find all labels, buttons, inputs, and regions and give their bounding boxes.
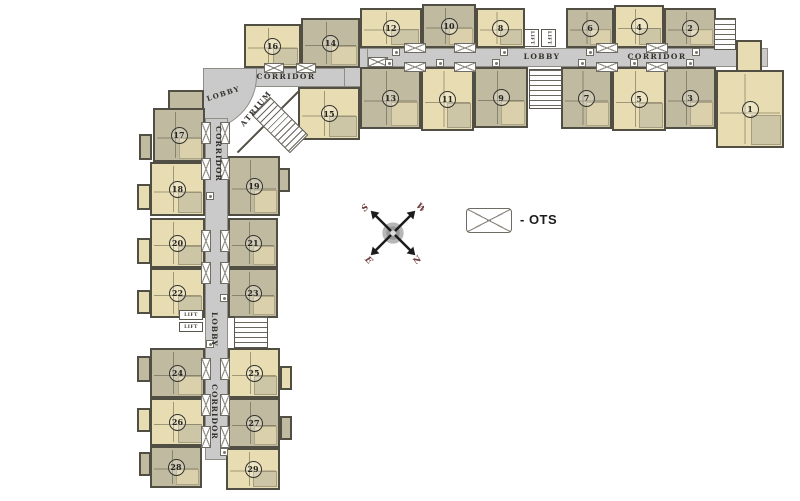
unit-20: 20 — [150, 218, 205, 268]
lift-shaft: LIFT — [179, 310, 203, 320]
label-corridor-left-upper: CORRIDOR — [214, 126, 223, 182]
unit-16: 16 — [244, 24, 301, 68]
unit-14: 14 — [301, 18, 360, 68]
entry-marker — [586, 48, 594, 56]
entry-marker — [436, 59, 444, 67]
balcony-bump — [139, 134, 152, 160]
unit-28: 28 — [150, 446, 202, 488]
building-block — [168, 90, 204, 110]
label-lobby-right: LOBBY — [518, 52, 566, 61]
unit-17: 17 — [153, 108, 205, 162]
compass-east: E — [362, 254, 374, 264]
unit-11-number: 11 — [439, 91, 456, 108]
unit-17-number: 17 — [171, 127, 188, 144]
entry-marker — [220, 448, 228, 456]
entry-marker — [392, 48, 400, 56]
unit-26-number: 26 — [169, 414, 186, 431]
lift-shaft: LIFT — [541, 29, 556, 47]
unit-28-number: 28 — [168, 459, 185, 476]
ots-shaft — [454, 62, 476, 72]
label-lobby-left: LOBBY — [210, 312, 219, 347]
ots-shaft — [201, 230, 211, 252]
unit-19: 19 — [228, 156, 280, 216]
unit-8-number: 8 — [492, 20, 509, 37]
unit-9-number: 9 — [493, 89, 510, 106]
balcony-bump — [280, 366, 292, 390]
lift-label: LIFT — [184, 325, 198, 330]
lift-label: LIFT — [529, 31, 534, 45]
unit-14-number: 14 — [322, 35, 339, 52]
unit-7-number: 7 — [578, 90, 595, 107]
balcony-bump — [137, 356, 151, 382]
unit-2: 2 — [664, 8, 716, 48]
ots-shaft — [220, 230, 230, 252]
ots-shaft — [220, 262, 230, 284]
ots-shaft — [201, 358, 211, 380]
legend-ots-symbol — [466, 208, 512, 233]
staircase-lobby-top — [529, 69, 562, 109]
ots-shaft — [201, 122, 211, 144]
entry-marker — [220, 294, 228, 302]
unit-3-number: 3 — [682, 90, 699, 107]
unit-12: 12 — [360, 8, 422, 48]
lift-shaft: LIFT — [179, 322, 203, 332]
entry-marker — [492, 59, 500, 67]
lift-label: LIFT — [184, 313, 198, 318]
unit-4: 4 — [614, 5, 664, 48]
unit-7: 7 — [561, 67, 612, 129]
unit-5: 5 — [612, 67, 666, 131]
staircase-left-lobby — [234, 316, 268, 348]
ots-shaft — [220, 394, 230, 416]
unit-1-number: 1 — [742, 101, 759, 118]
unit-27: 27 — [228, 398, 280, 448]
ots-shaft — [220, 426, 230, 448]
ots-shaft — [201, 158, 211, 180]
lift-label: LIFT — [546, 31, 551, 45]
compass-west: W — [414, 202, 424, 216]
unit-4-number: 4 — [631, 18, 648, 35]
unit-20-number: 20 — [169, 235, 186, 252]
unit-19-number: 19 — [246, 178, 263, 195]
floor-plan: 12 10 8 6 4 2 13 11 9 7 5 3 1 16 14 15 1… — [0, 0, 800, 501]
balcony-bump — [137, 290, 151, 314]
unit-10-number: 10 — [441, 18, 458, 35]
ots-shaft — [404, 62, 426, 72]
unit-12-number: 12 — [383, 20, 400, 37]
compass-south: S — [362, 203, 371, 215]
ots-shaft — [404, 43, 426, 53]
lift-shaft: LIFT — [524, 29, 539, 47]
label-corridor-corner: CORRIDOR — [246, 72, 326, 81]
balcony-bump — [280, 416, 292, 440]
unit-21: 21 — [228, 218, 278, 268]
ots-shaft — [201, 262, 211, 284]
unit-15: 15 — [298, 87, 360, 140]
building-block — [736, 40, 762, 72]
unit-9: 9 — [474, 67, 528, 128]
unit-1: 1 — [716, 70, 784, 148]
unit-18: 18 — [150, 162, 205, 216]
unit-24: 24 — [150, 348, 205, 398]
unit-15-number: 15 — [321, 105, 338, 122]
unit-6: 6 — [566, 8, 614, 48]
unit-13-number: 13 — [382, 90, 399, 107]
label-corridor-right: CORRIDOR — [612, 52, 702, 61]
staircase-right-end — [714, 18, 736, 50]
unit-10: 10 — [422, 4, 476, 48]
entry-marker — [385, 59, 393, 67]
entry-marker — [578, 59, 586, 67]
ots-shaft — [646, 62, 668, 72]
unit-22-number: 22 — [169, 285, 186, 302]
entry-marker — [206, 192, 214, 200]
legend-ots-label: - OTS — [520, 212, 557, 227]
unit-8: 8 — [476, 8, 525, 48]
unit-2-number: 2 — [682, 20, 699, 37]
unit-11: 11 — [421, 67, 474, 131]
unit-24-number: 24 — [169, 365, 186, 382]
unit-23-number: 23 — [245, 285, 262, 302]
unit-18-number: 18 — [169, 181, 186, 198]
ots-shaft — [454, 43, 476, 53]
unit-23: 23 — [228, 268, 278, 318]
compass-north: N — [411, 254, 424, 264]
unit-13: 13 — [360, 67, 421, 129]
unit-16-number: 16 — [264, 38, 281, 55]
balcony-bump — [137, 238, 151, 264]
unit-6-number: 6 — [582, 20, 599, 37]
unit-21-number: 21 — [245, 235, 262, 252]
unit-25: 25 — [228, 348, 280, 398]
unit-3: 3 — [664, 67, 716, 129]
entry-marker — [500, 48, 508, 56]
compass-rose-icon: S W E N — [362, 202, 424, 264]
ots-shaft — [596, 62, 618, 72]
balcony-bump — [278, 168, 290, 192]
unit-5-number: 5 — [631, 91, 648, 108]
label-corridor-left-lower: CORRIDOR — [210, 384, 219, 440]
unit-27-number: 27 — [246, 415, 263, 432]
unit-26: 26 — [150, 398, 205, 446]
unit-25-number: 25 — [246, 365, 263, 382]
unit-29-number: 29 — [245, 461, 262, 478]
balcony-bump — [137, 408, 151, 432]
balcony-bump — [139, 452, 151, 476]
unit-29: 29 — [226, 448, 280, 490]
balcony-bump — [137, 184, 151, 210]
ots-shaft — [220, 358, 230, 380]
